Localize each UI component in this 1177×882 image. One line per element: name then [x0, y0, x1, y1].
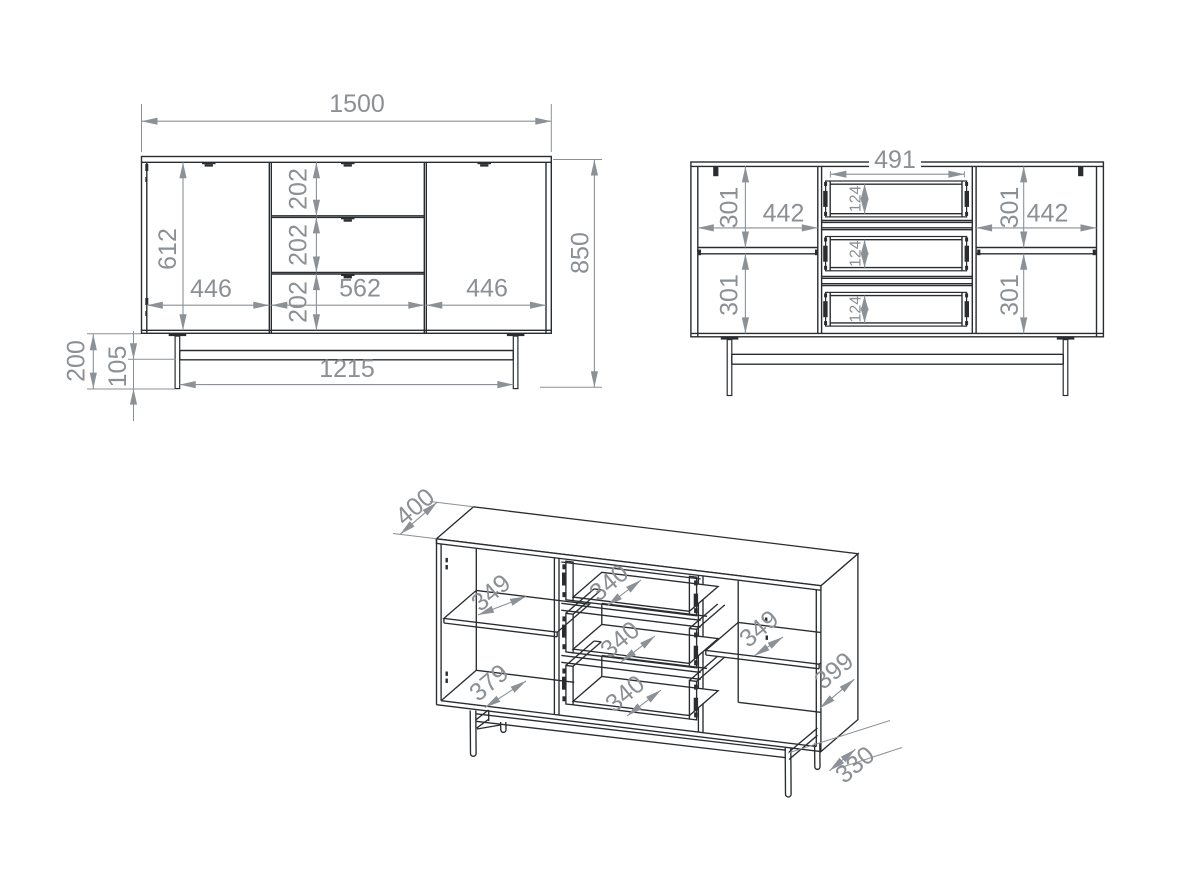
- svg-text:301: 301: [996, 274, 1024, 316]
- svg-text:850: 850: [567, 232, 595, 274]
- svg-text:491: 491: [874, 146, 916, 174]
- svg-text:442: 442: [763, 200, 805, 228]
- svg-text:612: 612: [154, 228, 182, 270]
- svg-text:1500: 1500: [329, 90, 385, 118]
- svg-text:446: 446: [466, 275, 508, 303]
- svg-text:1215: 1215: [319, 355, 375, 383]
- svg-text:202: 202: [285, 168, 313, 210]
- svg-text:301: 301: [716, 187, 744, 229]
- svg-text:124: 124: [848, 185, 865, 212]
- svg-text:202: 202: [285, 224, 313, 266]
- svg-text:349: 349: [466, 569, 516, 617]
- svg-text:202: 202: [285, 281, 313, 323]
- svg-text:301: 301: [996, 187, 1024, 229]
- svg-text:442: 442: [1027, 200, 1069, 228]
- svg-text:105: 105: [104, 346, 132, 388]
- svg-text:562: 562: [339, 275, 381, 303]
- svg-text:301: 301: [716, 274, 744, 316]
- svg-text:400: 400: [390, 483, 440, 531]
- svg-text:379: 379: [464, 659, 514, 707]
- svg-text:349: 349: [734, 605, 784, 653]
- svg-text:446: 446: [190, 275, 232, 303]
- svg-text:124: 124: [848, 296, 865, 323]
- svg-text:200: 200: [63, 340, 91, 382]
- svg-text:330: 330: [830, 741, 880, 789]
- svg-text:124: 124: [848, 240, 865, 267]
